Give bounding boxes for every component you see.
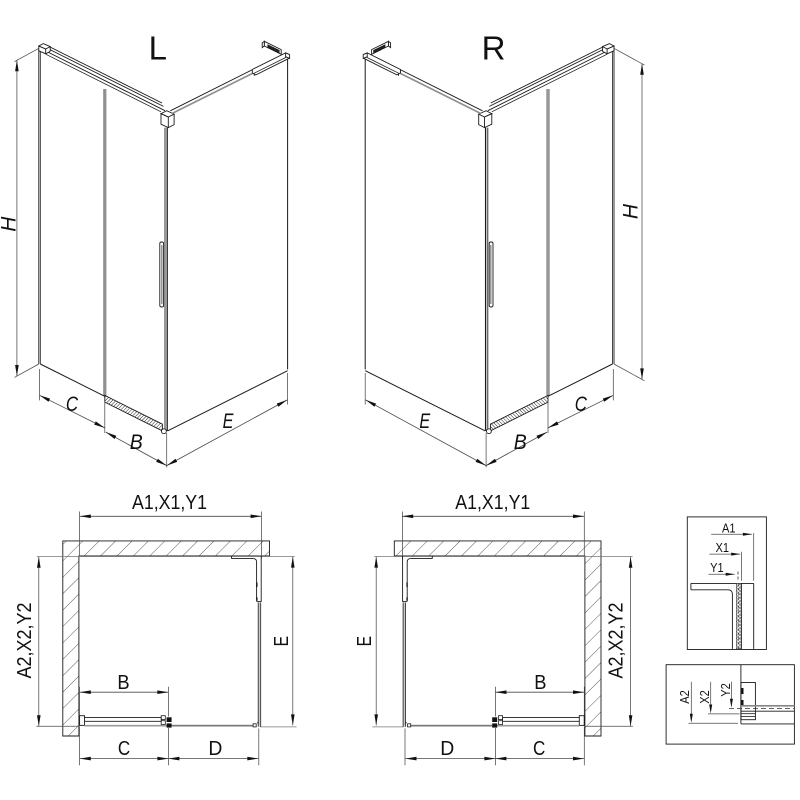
- svg-text:C: C: [118, 738, 130, 760]
- svg-text:A2,X2,Y2: A2,X2,Y2: [14, 603, 36, 679]
- svg-text:E: E: [271, 636, 293, 646]
- svg-text:A2,X2,Y2: A2,X2,Y2: [605, 603, 627, 679]
- svg-text:E: E: [419, 410, 431, 433]
- svg-text:Y2: Y2: [719, 683, 733, 697]
- svg-text:X2: X2: [698, 690, 712, 704]
- svg-text:A1: A1: [722, 521, 736, 535]
- svg-text:A1,X1,Y1: A1,X1,Y1: [132, 492, 207, 514]
- svg-text:D: D: [440, 738, 454, 760]
- svg-text:C: C: [575, 393, 588, 416]
- svg-text:A1,X1,Y1: A1,X1,Y1: [455, 492, 530, 514]
- svg-text:H: H: [0, 216, 21, 232]
- svg-text:C: C: [66, 393, 79, 416]
- svg-text:B: B: [534, 672, 546, 694]
- svg-text:R: R: [482, 30, 506, 67]
- svg-text:X1: X1: [716, 541, 730, 555]
- svg-text:B: B: [117, 672, 129, 694]
- svg-text:C: C: [533, 738, 545, 760]
- svg-text:H: H: [619, 203, 642, 219]
- svg-text:E: E: [223, 410, 235, 433]
- svg-text:L: L: [149, 30, 167, 67]
- svg-text:D: D: [208, 738, 222, 760]
- svg-text:B: B: [130, 431, 143, 454]
- svg-text:A2: A2: [678, 690, 692, 704]
- svg-text:B: B: [514, 431, 527, 454]
- svg-text:E: E: [354, 636, 376, 646]
- svg-text:Y1: Y1: [710, 561, 724, 575]
